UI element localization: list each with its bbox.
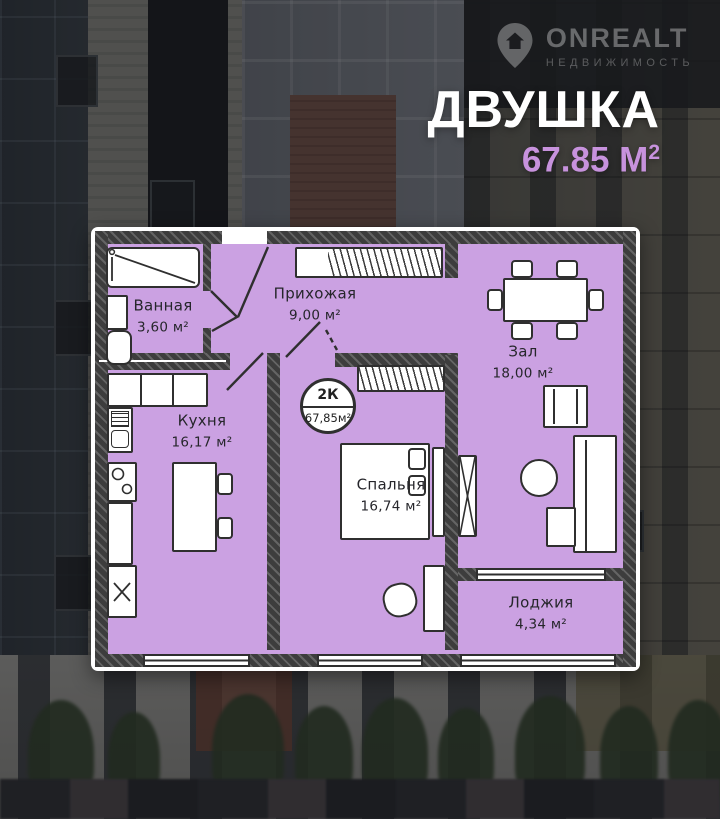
room-label-kitchen: Кухня 16,17 м² [172, 410, 233, 453]
wall-loggia-stub [458, 568, 476, 581]
window-bedroom [317, 654, 423, 667]
wardrobe [357, 365, 445, 392]
window-loggia-glazing [460, 654, 616, 667]
chair [556, 322, 578, 340]
logo: ONREALT НЕДВИЖИМОСТЬ [495, 22, 694, 69]
room-label-living: Зал 18,00 м² [493, 341, 554, 384]
armrest-line [553, 389, 555, 424]
window-living-loggia [476, 568, 606, 581]
dining-table [503, 278, 588, 322]
room-name: Лоджия [509, 592, 574, 615]
wardrobe [295, 247, 443, 278]
logo-tagline: НЕДВИЖИМОСТЬ [546, 57, 694, 69]
desk-chair [379, 579, 420, 620]
wall-kitchen-right [267, 353, 280, 650]
sink-bowl [111, 430, 129, 448]
logo-name: ONREALT [546, 23, 694, 54]
kitchen-table [172, 462, 217, 552]
chair [511, 260, 533, 278]
room-label-bedroom: Спальня 16,74 м² [357, 474, 426, 517]
room-area: 4,34 м² [509, 614, 574, 634]
room-area: 16,17 м² [172, 432, 233, 452]
room-name: Зал [493, 341, 554, 364]
room-name: Прихожая [274, 283, 357, 306]
poster: ONREALT НЕДВИЖИМОСТЬ ДВУШКА 67.85 М2 [0, 0, 720, 819]
page-title: ДВУШКА [427, 84, 660, 136]
floorplan: Ванная 3,60 м² Прихожая 9,00 м² Зал 18,0… [95, 231, 636, 667]
total-area-value: 67.85 М [522, 141, 648, 180]
total-area: 67.85 М2 [427, 142, 660, 178]
wall-living-left [445, 244, 458, 278]
chair [556, 260, 578, 278]
floorplan-frame: Ванная 3,60 м² Прихожая 9,00 м² Зал 18,0… [91, 227, 640, 671]
logo-pin-icon [495, 22, 535, 69]
room-name: Ванная [133, 295, 192, 318]
total-area-sup: 2 [648, 141, 660, 164]
headline: ДВУШКА 67.85 М2 [427, 84, 660, 178]
wall-bathroom-right [203, 244, 211, 291]
room-area: 9,00 м² [274, 305, 357, 325]
counter-divider [172, 375, 174, 405]
chair [217, 473, 233, 495]
coffee-table [520, 459, 558, 497]
logo-text: ONREALT НЕДВИЖИМОСТЬ [546, 23, 694, 69]
badge-rooms: 2К [303, 387, 353, 408]
washing-machine [107, 565, 137, 618]
stove [107, 462, 137, 502]
armchair [543, 385, 588, 428]
toilet [106, 330, 132, 365]
bathroom-sink [106, 295, 128, 330]
sofa [573, 435, 617, 553]
wall-top [95, 231, 636, 244]
chair [588, 289, 604, 311]
room-label-hallway: Прихожая 9,00 м² [274, 283, 357, 326]
kitchen-cabinet [107, 502, 133, 565]
dish-rack [111, 411, 129, 427]
sofa-chaise [546, 507, 576, 547]
room-area: 16,74 м² [357, 496, 426, 516]
entrance-door-opening [222, 231, 267, 244]
room-name: Кухня [172, 410, 233, 433]
kitchen-counter-top [107, 373, 208, 407]
window-kitchen [143, 654, 250, 667]
room-label-loggia: Лоджия 4,34 м² [509, 592, 574, 635]
wall-living-left [445, 355, 458, 650]
tv-stand [458, 455, 477, 537]
armrest-line [576, 389, 578, 424]
wall-loggia-stub [606, 568, 623, 581]
desk [423, 565, 445, 632]
sofa-back-line [585, 440, 587, 552]
pillow [408, 448, 426, 470]
room-name: Спальня [357, 474, 426, 497]
wardrobe-hatch [328, 249, 441, 276]
dresser [432, 447, 445, 537]
badge-area: 67,85м² [303, 408, 353, 425]
room-label-bathroom: Ванная 3,60 м² [133, 295, 192, 338]
chair [511, 322, 533, 340]
kitchen-sink-unit [107, 407, 133, 453]
room-area: 18,00 м² [493, 363, 554, 383]
room-area: 3,60 м² [133, 317, 192, 337]
chair [217, 517, 233, 539]
counter-divider [140, 375, 142, 405]
wall-right [623, 231, 636, 667]
bathtub [106, 247, 200, 288]
apartment-type-badge: 2К 67,85м² [300, 378, 356, 434]
chair [487, 289, 503, 311]
